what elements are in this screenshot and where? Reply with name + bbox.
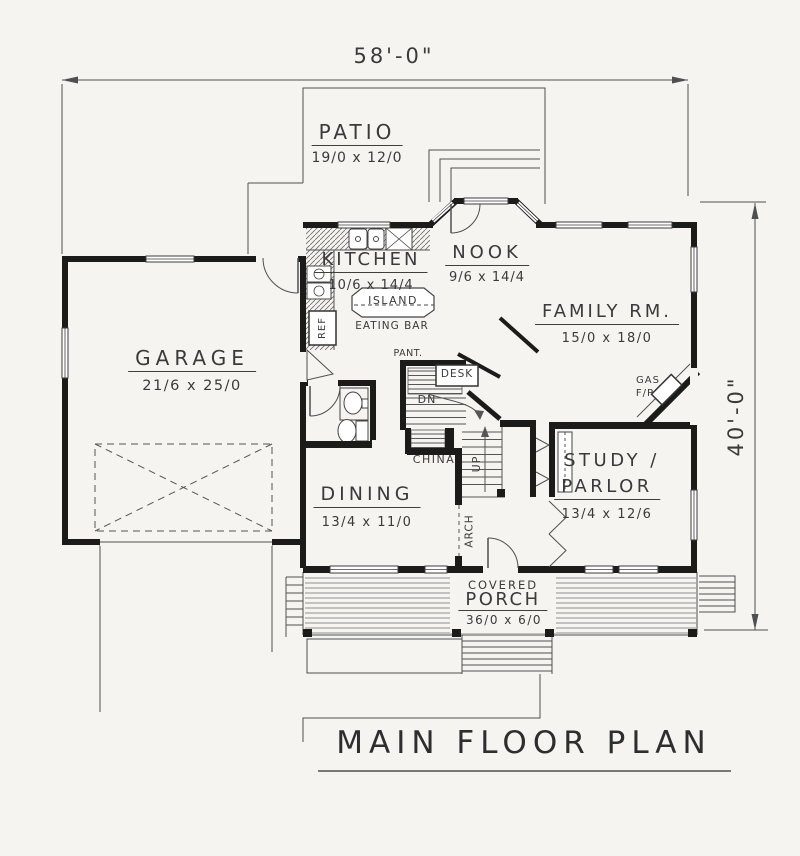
garage-label: GARAGE (128, 348, 256, 372)
porch-label: PORCH (458, 591, 547, 611)
nook-label: NOOK (445, 244, 529, 266)
refrigerator-label: REF (318, 317, 329, 339)
china-label: CHINA (413, 454, 455, 466)
bathroom-fixtures (338, 388, 368, 443)
porch-size: 36/0 x 6/0 (466, 614, 542, 627)
dining-label: DINING (314, 485, 421, 508)
overall-width-dimension: 58'-0" (353, 45, 434, 67)
patio-label: PATIO (312, 122, 403, 146)
bay-diagonal-windows (433, 203, 537, 221)
overall-height-dimension: 40'-0" (725, 375, 747, 456)
patio-size: 19/0 x 12/0 (311, 151, 402, 166)
stairs-down-label: DN (418, 394, 437, 406)
study-label-line1: STUDY / (564, 452, 660, 471)
garage-ceiling-storage (95, 444, 272, 531)
study-size: 13/4 x 12/6 (562, 508, 653, 522)
kitchen-label: KITCHEN (315, 251, 428, 273)
fireplace-label-gas: GAS (636, 376, 660, 387)
floor-plan-sheet: 58'-0" 40'-0" PATIO 19/0 x 12/0 KITCHEN … (0, 0, 800, 856)
island-label: ISLAND (368, 295, 418, 307)
family-room-size: 15/0 x 18/0 (562, 332, 653, 346)
desk-label: DESK (441, 369, 473, 380)
china-cabinet-box (411, 430, 445, 450)
family-room-label: FAMILY RM. (535, 303, 679, 325)
dining-size: 13/4 x 11/0 (322, 516, 413, 530)
nook-size: 9/6 x 14/4 (449, 271, 525, 285)
stairs-up-label: UP (471, 456, 483, 473)
garage-size: 21/6 x 25/0 (142, 379, 241, 394)
pantry-label: PANT. (394, 349, 423, 359)
kitchen-size: 10/6 x 14/4 (328, 279, 413, 293)
study-label-line2: PARLOR (554, 478, 660, 500)
sheet-title: MAIN FLOOR PLAN (336, 727, 711, 760)
arch-label: ARCH (464, 514, 475, 547)
eating-bar-label: EATING BAR (355, 321, 429, 332)
fireplace-label-fp: F/P (636, 389, 654, 400)
